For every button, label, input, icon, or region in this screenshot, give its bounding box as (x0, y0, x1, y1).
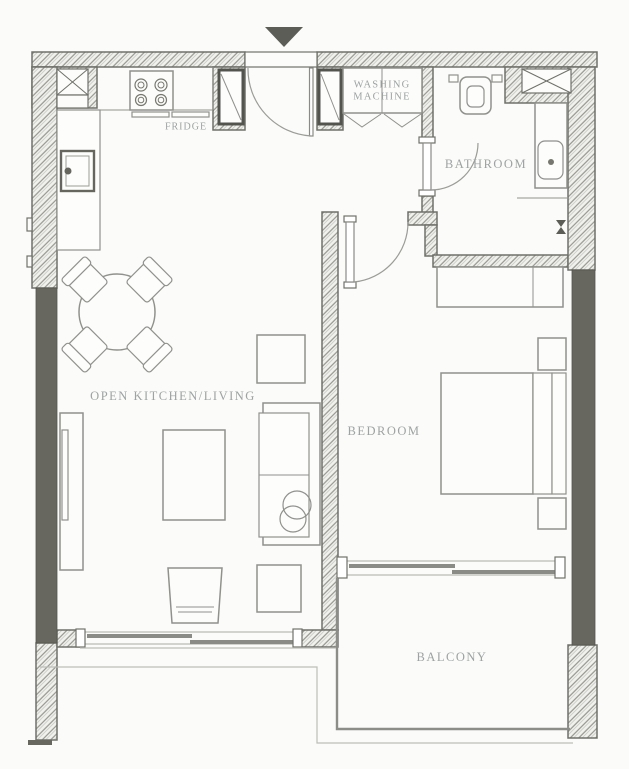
bedroom-door (344, 216, 408, 288)
nightstand (538, 338, 566, 370)
coffee-table (163, 430, 225, 520)
nightstand (538, 498, 566, 529)
dining-set (61, 256, 173, 373)
toilet-icon (460, 77, 491, 114)
entrance-arrow (265, 27, 303, 47)
balcony-label: BALCONY (417, 650, 488, 664)
tv-icon (62, 430, 68, 520)
fridge-label: FRIDGE (165, 121, 207, 132)
cistern-box (449, 75, 458, 82)
pillow (552, 373, 566, 494)
mattress (441, 373, 533, 494)
window-left (36, 288, 57, 643)
cistern-box (492, 75, 502, 82)
entry-door-leaf (310, 68, 314, 136)
wall-base-left (28, 740, 52, 745)
floor-plan-drawing (0, 0, 629, 769)
shaft-icon-kitchen (57, 69, 88, 108)
wall-tick-left-1 (27, 218, 32, 231)
ottoman (257, 565, 301, 612)
washing-machine-label: WASHING MACHINE (353, 79, 410, 103)
tv-unit (60, 413, 83, 570)
living-furniture (60, 335, 320, 623)
sprinkler-icon (556, 220, 566, 234)
washbasin-icon (535, 103, 567, 188)
balcony-outline (40, 578, 573, 743)
cabinet-handle (172, 112, 209, 117)
entry-door (219, 27, 341, 136)
bathroom-label: BATHROOM (445, 157, 527, 171)
bed (441, 373, 566, 494)
sliding-door-bedroom (337, 557, 565, 578)
sliding-door-living (76, 629, 302, 647)
bifold-door (344, 114, 381, 127)
pillow (533, 373, 552, 494)
wall-tick-left-2 (27, 256, 32, 267)
window-right (572, 270, 595, 645)
bedroom-label: BEDROOM (347, 424, 420, 438)
bifold-door (384, 114, 421, 127)
side-table (257, 335, 305, 383)
living-label: OPEN KITCHEN/LIVING (90, 389, 256, 403)
sink-icon (61, 151, 94, 191)
sofa (259, 403, 320, 545)
armchair (168, 568, 222, 623)
cabinet-handle (132, 112, 169, 117)
stove-icon (130, 71, 173, 110)
floor-plan: FRIDGE WASHING MACHINE BATHROOM OPEN KIT… (0, 0, 629, 769)
shaft-icon-bathroom (522, 69, 571, 93)
wardrobe (437, 267, 563, 307)
entry-door-arc (248, 68, 311, 136)
